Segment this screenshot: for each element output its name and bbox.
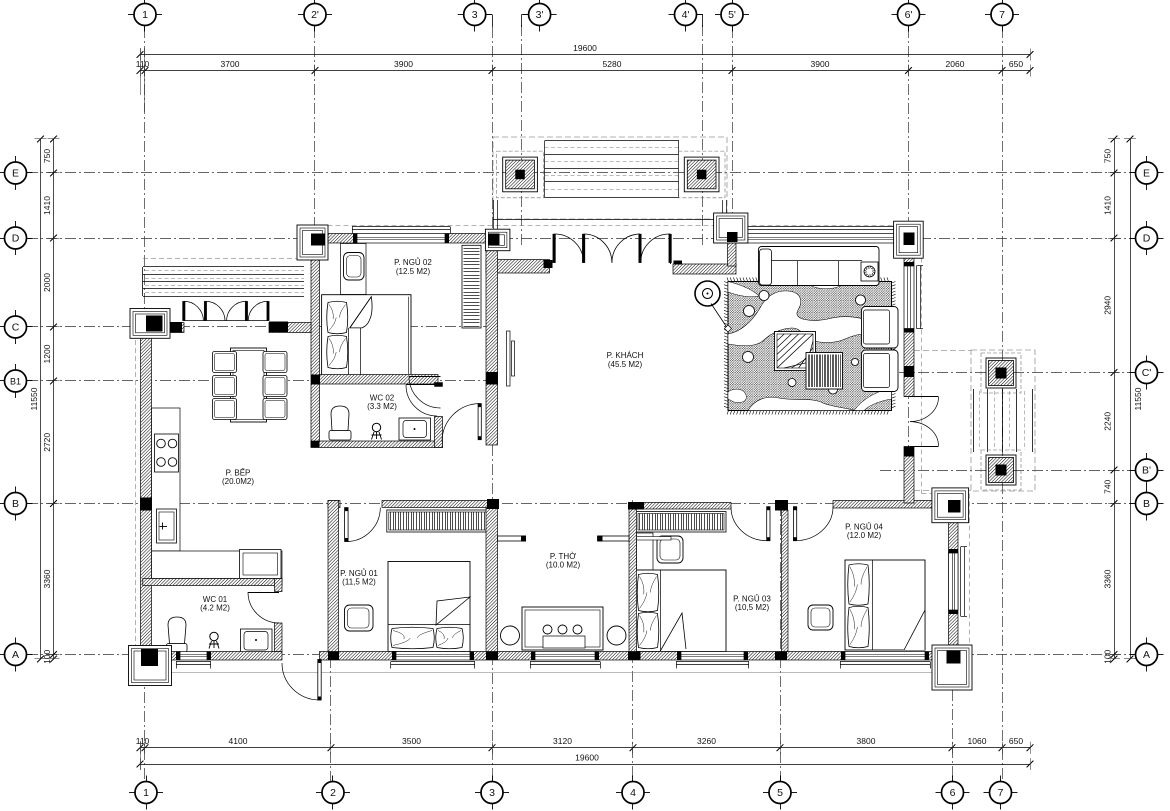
svg-text:3: 3 (489, 787, 495, 799)
svg-text:650: 650 (1009, 736, 1023, 746)
svg-text:1410: 1410 (42, 196, 52, 215)
svg-text:11550: 11550 (1133, 387, 1143, 410)
svg-text:3900: 3900 (394, 59, 413, 69)
svg-text:3500: 3500 (402, 736, 421, 746)
svg-text:(11,5 M2): (11,5 M2) (342, 578, 376, 587)
svg-text:A: A (1143, 649, 1150, 661)
svg-text:(4.2 M2): (4.2 M2) (200, 604, 230, 613)
svg-text:750: 750 (1103, 149, 1113, 163)
svg-text:1: 1 (143, 787, 149, 799)
svg-text:D: D (1143, 233, 1151, 245)
svg-text:B': B' (1142, 465, 1151, 477)
svg-text:3900: 3900 (811, 59, 830, 69)
svg-text:2240: 2240 (1103, 412, 1113, 431)
svg-text:B1: B1 (10, 377, 21, 387)
svg-text:E: E (1143, 168, 1150, 180)
svg-text:(20.0M2): (20.0M2) (222, 477, 254, 486)
svg-text:3360: 3360 (42, 569, 52, 588)
svg-text:C: C (12, 322, 20, 334)
svg-text:110: 110 (136, 59, 150, 69)
svg-text:650: 650 (1009, 59, 1023, 69)
svg-text:P. NGỦ 02: P. NGỦ 02 (394, 258, 432, 267)
svg-text:4: 4 (630, 787, 636, 799)
svg-text:2000: 2000 (42, 273, 52, 292)
svg-text:1060: 1060 (968, 736, 987, 746)
svg-text:110: 110 (136, 736, 150, 746)
svg-text:A: A (12, 649, 19, 661)
svg-text:(45.5 M2): (45.5 M2) (608, 360, 643, 369)
svg-text:740: 740 (1103, 479, 1113, 493)
svg-text:4': 4' (682, 9, 690, 21)
svg-text:B: B (1143, 498, 1150, 510)
svg-text:11550: 11550 (29, 387, 39, 410)
svg-text:3360: 3360 (1103, 569, 1113, 588)
svg-text:(10.0 M2): (10.0 M2) (546, 561, 581, 570)
svg-text:1410: 1410 (1103, 196, 1113, 215)
svg-text:3260: 3260 (697, 736, 716, 746)
svg-text:3: 3 (472, 9, 478, 21)
svg-text:3': 3' (536, 9, 544, 21)
svg-text:6: 6 (950, 787, 956, 799)
svg-text:100: 100 (1103, 649, 1113, 663)
svg-text:2940: 2940 (1103, 296, 1113, 315)
svg-text:3800: 3800 (857, 736, 876, 746)
svg-text:(3.3 M2): (3.3 M2) (367, 402, 397, 411)
svg-text:D: D (12, 233, 20, 245)
svg-text:P. KHÁCH: P. KHÁCH (607, 351, 644, 360)
svg-text:2720: 2720 (42, 433, 52, 452)
svg-text:7: 7 (999, 9, 1005, 21)
svg-text:E: E (12, 168, 19, 180)
svg-text:1: 1 (142, 9, 148, 21)
svg-text:19600: 19600 (573, 43, 597, 53)
svg-text:3700: 3700 (221, 59, 240, 69)
svg-text:2': 2' (311, 9, 319, 21)
svg-text:3120: 3120 (553, 736, 572, 746)
svg-text:P. BẾP: P. BẾP (226, 468, 251, 478)
svg-text:(12.0 M2): (12.0 M2) (847, 531, 882, 540)
svg-text:5': 5' (728, 9, 736, 21)
svg-text:(10,5 M2): (10,5 M2) (735, 603, 770, 612)
svg-text:750: 750 (42, 149, 52, 163)
svg-text:4100: 4100 (229, 736, 248, 746)
svg-text:2060: 2060 (946, 59, 965, 69)
svg-text:7: 7 (998, 787, 1004, 799)
svg-text:C': C' (1142, 367, 1152, 379)
svg-text:2: 2 (330, 787, 336, 799)
svg-text:(12.5 M2): (12.5 M2) (396, 267, 431, 276)
svg-text:6': 6' (905, 9, 913, 21)
svg-text:5280: 5280 (603, 59, 622, 69)
svg-text:19600: 19600 (575, 753, 599, 763)
svg-text:1200: 1200 (42, 344, 52, 363)
svg-text:B: B (12, 498, 19, 510)
svg-text:5: 5 (777, 787, 783, 799)
